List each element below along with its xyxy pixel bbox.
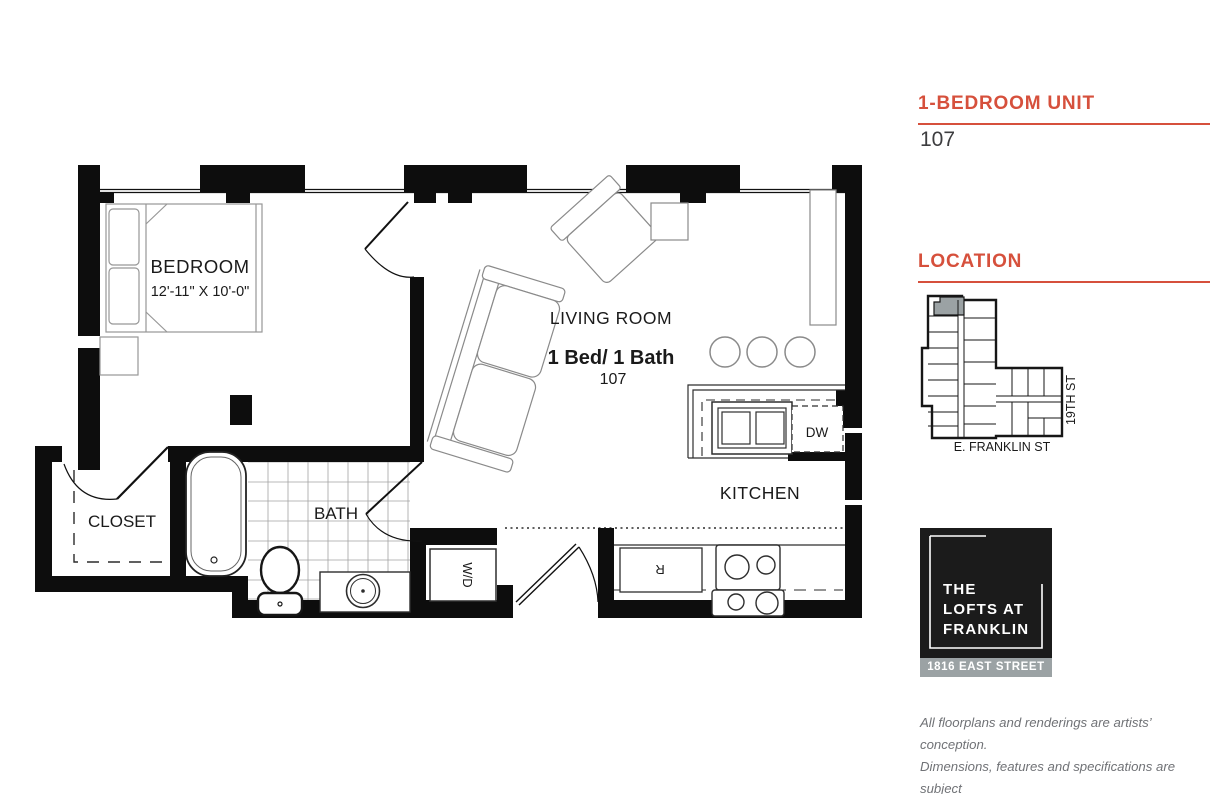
bath-label: BATH (314, 504, 358, 523)
info-sidebar: 1-BEDROOM UNIT 107 LOCATION (918, 0, 1210, 794)
logo-line3: FRANKLIN (943, 620, 1029, 640)
floorplan-sheet: BEDROOM 12'-11" X 10'-0" LIVING ROOM 1 B… (0, 0, 1228, 794)
highlighted-unit (934, 297, 964, 315)
logo-line2: LOFTS AT (943, 600, 1029, 620)
entry-door (516, 544, 598, 605)
side-table (651, 203, 688, 240)
disclaimer-line1: All floorplans and renderings are artist… (920, 712, 1212, 756)
location-heading: LOCATION (918, 251, 1210, 283)
disclaimer-line2: Dimensions, features and specifications … (920, 756, 1212, 794)
dishwasher-label: DW (806, 425, 829, 440)
bedroom-label: BEDROOM (150, 256, 249, 277)
logo-wordmark: THE LOFTS AT FRANKLIN (943, 580, 1029, 640)
bathtub (186, 452, 246, 576)
unit-number: 107 (920, 128, 955, 152)
logo-line1: THE (943, 580, 1029, 600)
logo-address-bar: 1816 EAST STREET (920, 658, 1052, 677)
bedroom-door (365, 202, 414, 277)
living-room-label: LIVING ROOM (550, 308, 672, 328)
location-map: E. FRANKLIN ST 19TH ST (918, 288, 1090, 463)
building-footprint (922, 296, 1062, 438)
bedroom-dimensions: 12'-11" X 10'-0" (151, 284, 250, 300)
street-label-bottom: E. FRANKLIN ST (954, 440, 1051, 454)
disclaimer-text: All floorplans and renderings are artist… (920, 712, 1212, 794)
stove (712, 545, 784, 616)
toilet (258, 547, 302, 615)
street-label-right: 19TH ST (1064, 375, 1078, 425)
closet-label: CLOSET (88, 512, 156, 531)
nightstand (100, 337, 138, 375)
console-cabinet (810, 190, 836, 325)
location-label: LOCATION (918, 251, 1022, 272)
floor-plan: BEDROOM 12'-11" X 10'-0" LIVING ROOM 1 B… (0, 0, 900, 794)
unit-summary-label: 1 Bed/ 1 Bath (548, 347, 675, 369)
unit-type-heading: 1-BEDROOM UNIT (918, 93, 1210, 125)
sofa (426, 264, 566, 473)
vanity-sink (320, 572, 410, 612)
brand-logo: THE LOFTS AT FRANKLIN (920, 528, 1052, 658)
kitchen-label: KITCHEN (720, 483, 800, 503)
refrigerator-label: R (655, 562, 664, 577)
bar-stools (710, 337, 815, 367)
washer-dryer-label: W/D (460, 562, 475, 587)
unit-number-label: 107 (600, 371, 627, 388)
unit-type-label: 1-BEDROOM UNIT (918, 93, 1095, 114)
